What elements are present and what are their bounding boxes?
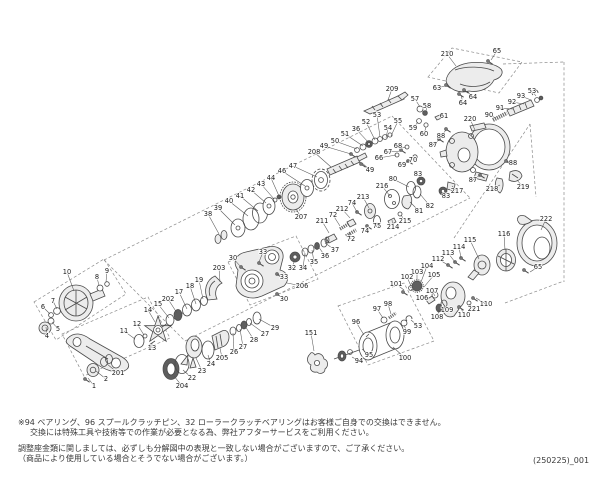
part-label-2: 2 [104, 375, 108, 383]
schematic-page: 2106563646420957585960618887220909192935… [0, 0, 600, 486]
part-label-222: 222 [540, 215, 553, 223]
arm-hole [73, 338, 81, 347]
part-label-55: 55 [394, 117, 402, 125]
part-label-72: 72 [329, 211, 337, 219]
part-label-6: 6 [41, 303, 45, 311]
retainer [253, 312, 261, 324]
part-label-88: 88 [509, 159, 517, 167]
washer [308, 245, 314, 253]
part-label-205: 205 [216, 354, 229, 362]
nut [539, 96, 543, 100]
level-wind-group [401, 256, 477, 316]
part-label-13: 13 [148, 344, 156, 352]
part-label-70: 70 [409, 156, 417, 164]
part-label-74: 74 [361, 227, 369, 235]
part-label-47: 47 [289, 162, 297, 170]
washer [134, 335, 144, 348]
part-label-110: 110 [458, 311, 471, 319]
part-label-220: 220 [464, 115, 477, 123]
part-label-65: 65 [534, 263, 542, 271]
part-label-212: 212 [336, 205, 349, 213]
part-label-202: 202 [162, 295, 175, 303]
bearing [315, 243, 320, 250]
part-label-38: 38 [204, 210, 212, 218]
part-label-53: 53 [373, 111, 381, 119]
part-label-95: 95 [365, 351, 373, 359]
main-frame [440, 123, 522, 193]
stud [326, 234, 337, 243]
knob-nut [97, 285, 103, 291]
part-label-204: 204 [176, 382, 189, 390]
part-label-36: 36 [321, 252, 329, 260]
part-label-68: 68 [394, 142, 402, 150]
part-label-53: 53 [414, 322, 422, 330]
spool-flange [386, 321, 404, 349]
part-label-209: 209 [386, 85, 399, 93]
part-label-203: 203 [213, 264, 226, 272]
part-label-216: 216 [376, 182, 389, 190]
drag-washer [183, 304, 192, 316]
part-label-53: 53 [528, 87, 536, 95]
part-label-8: 8 [95, 273, 99, 281]
part-label-88: 88 [437, 132, 445, 140]
part-label-105: 105 [428, 271, 441, 279]
part-label-74: 74 [348, 199, 356, 207]
part-label-114: 114 [453, 243, 466, 251]
part-label-19: 19 [195, 276, 203, 284]
part-label-64: 64 [469, 93, 477, 101]
part-label-206: 206 [296, 282, 309, 290]
part-label-49: 49 [366, 166, 374, 174]
right-group-box-line [505, 281, 564, 303]
part-label-65: 65 [493, 47, 501, 55]
part-label-46: 46 [278, 167, 286, 175]
document-number: (250225)_001 [533, 456, 589, 465]
part-label-41: 41 [236, 192, 244, 200]
part-label-201: 201 [112, 369, 125, 377]
screw [522, 268, 528, 273]
part-label-99: 99 [403, 328, 411, 336]
shaft-journal [357, 153, 367, 161]
part-label-61: 61 [440, 112, 448, 120]
part-label-17: 17 [175, 288, 183, 296]
part-label-33: 33 [280, 273, 288, 281]
part-label-93: 93 [517, 92, 525, 100]
part-label-214: 214 [387, 223, 400, 231]
washer [381, 317, 387, 323]
nut [423, 111, 428, 116]
part-label-5: 5 [56, 325, 60, 333]
part-label-151: 151 [305, 329, 318, 337]
part-label-1: 1 [92, 382, 96, 390]
part-label-37: 37 [331, 246, 339, 254]
washer [301, 180, 314, 197]
part-label-36: 36 [352, 125, 360, 133]
idle-gear [412, 281, 422, 291]
part-label-211: 211 [316, 217, 329, 225]
part-label-24: 24 [207, 360, 215, 368]
part-number-labels: 2106563646420957585960618887220909192935… [41, 47, 552, 390]
kick-lever [206, 276, 222, 300]
part-label-44: 44 [267, 174, 275, 182]
part-label-43: 43 [257, 180, 265, 188]
part-label-60: 60 [420, 130, 428, 138]
footnote-line-2: 交換には特殊工具や技術等での作業が必要となる為、弊社アフターサービスをご利用くだ… [30, 428, 374, 437]
part-label-69: 69 [398, 161, 406, 169]
part-label-63: 63 [433, 84, 441, 92]
exploded-diagram: 2106563646420957585960618887220909192935… [0, 0, 600, 486]
spring [389, 313, 396, 318]
part-label-23: 23 [198, 367, 206, 375]
drag-washer [201, 297, 208, 306]
part-label-101: 101 [390, 280, 403, 288]
washer [372, 138, 378, 144]
part-label-96: 96 [352, 318, 360, 326]
screw [349, 152, 355, 157]
part-label-7: 7 [51, 297, 55, 305]
part-label-52: 52 [362, 118, 370, 126]
part-label-102: 102 [401, 273, 414, 281]
knob-washer [105, 282, 110, 287]
part-label-219: 219 [517, 183, 530, 191]
washer [247, 319, 252, 326]
part-label-72: 72 [347, 235, 355, 243]
part-label-51: 51 [341, 130, 349, 138]
part-label-81: 81 [415, 207, 423, 215]
cam-gear [365, 204, 376, 219]
worm-shaft [327, 156, 360, 175]
part-label-215: 215 [399, 217, 412, 225]
part-label-10: 10 [63, 268, 71, 276]
part-label-100: 100 [399, 354, 412, 362]
part-label-22: 22 [188, 374, 196, 382]
drag-washer [192, 299, 201, 311]
side-plate-right-group [468, 216, 557, 280]
screw [471, 296, 477, 301]
part-label-40: 40 [225, 197, 233, 205]
ring [243, 208, 259, 230]
ring [202, 341, 214, 359]
part-label-28: 28 [250, 336, 258, 344]
part-label-57: 57 [411, 95, 419, 103]
part-label-11: 11 [120, 327, 128, 335]
part-label-98: 98 [384, 300, 392, 308]
clip [378, 137, 383, 142]
knob-shaft [90, 289, 105, 301]
part-label-64: 64 [459, 99, 467, 107]
part-label-110: 110 [480, 300, 493, 308]
part-label-54: 54 [384, 124, 392, 132]
part-label-92: 92 [508, 98, 516, 106]
drive-side-plate [235, 239, 327, 298]
washer [535, 98, 540, 103]
screw [444, 127, 450, 132]
part-label-59: 59 [409, 124, 417, 132]
right-group-box-line [530, 124, 536, 197]
screw [457, 92, 463, 97]
part-label-66: 66 [375, 154, 383, 162]
part-label-213: 213 [357, 193, 370, 201]
part-label-83: 83 [442, 192, 450, 200]
part-label-90: 90 [485, 111, 493, 119]
part-label-35: 35 [310, 258, 318, 266]
part-label-94: 94 [355, 357, 363, 365]
part-label-18: 18 [186, 282, 194, 290]
clutch-plate [364, 96, 404, 114]
part-label-97: 97 [373, 305, 381, 313]
part-label-4: 4 [45, 332, 49, 340]
part-label-15: 15 [154, 300, 162, 308]
part-label-39: 39 [214, 204, 222, 212]
part-label-32: 32 [288, 264, 296, 272]
handle-screw [83, 377, 89, 382]
drag-nut [174, 310, 182, 321]
part-label-83: 83 [414, 170, 422, 178]
right-group-box-line [503, 62, 564, 64]
part-label-27: 27 [239, 343, 247, 351]
part-label-49: 49 [320, 142, 328, 150]
collar [215, 235, 221, 244]
part-label-50: 50 [331, 137, 339, 145]
part-label-26: 26 [230, 348, 238, 356]
part-label-116: 116 [498, 230, 511, 238]
group-boxes [34, 48, 564, 376]
washer [424, 123, 428, 127]
part-label-75: 75 [373, 222, 381, 230]
part-label-115: 115 [464, 236, 477, 244]
part-label-67: 67 [384, 148, 392, 156]
part-label-208: 208 [308, 148, 321, 156]
part-label-217: 217 [451, 187, 464, 195]
part-label-27: 27 [261, 330, 269, 338]
part-label-82: 82 [426, 202, 434, 210]
clutch-sleeve [212, 330, 229, 350]
footnote-line-3: 調整座金類に関しましては、必ずしも分解図中の表現と一致しない場合がございますので… [18, 444, 409, 453]
screw [401, 290, 407, 295]
part-label-218: 218 [486, 185, 499, 193]
handle-screw-plate [87, 364, 99, 377]
screw [446, 263, 452, 268]
part-label-42: 42 [247, 186, 255, 194]
part-label-9: 9 [105, 267, 109, 275]
part-label-108: 108 [431, 313, 444, 321]
part-label-12: 12 [133, 320, 141, 328]
part-label-14: 14 [144, 306, 152, 314]
part-label-106: 106 [416, 294, 429, 302]
part-label-210: 210 [441, 50, 454, 58]
footnote-line-4: （商品により使用している場合とそうでない場合がございます。） [18, 454, 253, 463]
screw [459, 256, 465, 261]
part-label-34: 34 [299, 264, 307, 272]
part-label-30: 30 [229, 254, 237, 262]
footnote-line-1: ※94 ベアリング、96 スプールクラッチピン、32 ローラークラッチベアリング… [18, 418, 446, 427]
part-label-80: 80 [389, 175, 397, 183]
part-label-207: 207 [295, 213, 308, 221]
spring [493, 113, 507, 120]
part-label-29: 29 [271, 324, 279, 332]
part-label-112: 112 [432, 255, 445, 263]
part-label-58: 58 [423, 102, 431, 110]
part-label-87: 87 [469, 176, 477, 184]
washer [405, 145, 409, 149]
handle-knob-assembly [39, 282, 109, 334]
part-label-30: 30 [280, 295, 288, 303]
part-label-91: 91 [496, 104, 504, 112]
part-label-87: 87 [429, 141, 437, 149]
part-label-33: 33 [259, 248, 267, 256]
